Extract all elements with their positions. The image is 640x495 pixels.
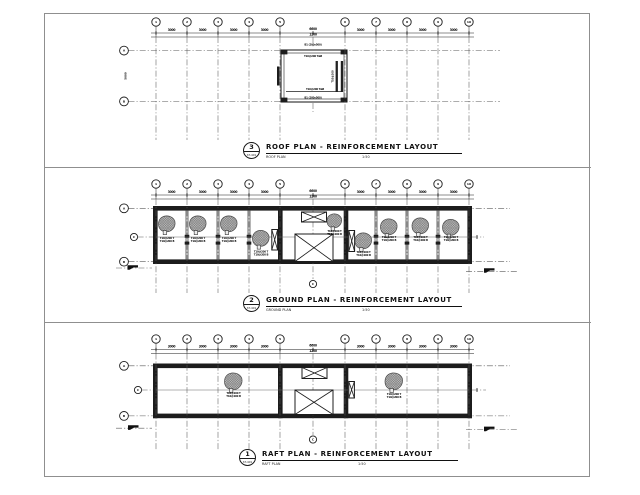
hatch-blob (327, 214, 342, 228)
level-marker (484, 268, 495, 273)
svg-text:3000: 3000 (419, 28, 427, 32)
svg-text:T10@200: T10@200 (332, 70, 335, 83)
ground-plan-title: GROUND PLAN - REINFORCEMENT LAYOUT (266, 296, 462, 307)
svg-text:3000: 3000 (419, 345, 427, 349)
svg-text:T10@200 T&B: T10@200 T&B (304, 54, 322, 58)
ground-title-block: 2 ST-401 GROUND PLAN - REINFORCEMENT LAY… (243, 295, 462, 314)
raft-plan-subtitle: RAFT PLAN (262, 462, 280, 466)
svg-text:10: 10 (467, 337, 471, 341)
svg-text:T10@200 B: T10@200 B (160, 239, 175, 243)
svg-text:3000: 3000 (230, 190, 238, 194)
svg-text:T10@200 B: T10@200 B (413, 238, 428, 242)
svg-text:2: 2 (186, 20, 188, 24)
hatch-blob (385, 373, 403, 390)
svg-text:3000: 3000 (230, 28, 238, 32)
ground-plan-scale: 1:50 (362, 308, 370, 312)
plans-canvas: AB5000T10@200B1 (200x500)T10@200 T&BT10@… (0, 0, 640, 495)
hatch-blob (225, 373, 243, 390)
roof-plan-title: ROOF PLAN - REINFORCEMENT LAYOUT (266, 143, 462, 154)
svg-text:8: 8 (406, 182, 408, 186)
svg-text:6600: 6600 (309, 189, 317, 193)
svg-text:T10@200 B: T10@200 B (222, 239, 237, 243)
svg-text:3000: 3000 (388, 28, 396, 32)
svg-text:3000: 3000 (357, 28, 365, 32)
svg-text:B1 (200x500): B1 (200x500) (304, 96, 321, 100)
svg-text:5: 5 (279, 20, 281, 24)
callout-number: 3 (244, 143, 259, 152)
hatch-blob (190, 216, 207, 232)
svg-text:7: 7 (375, 337, 377, 341)
svg-text:1: 1 (155, 20, 157, 24)
raft-plan-title: RAFT PLAN - REINFORCEMENT LAYOUT (262, 450, 458, 461)
svg-text:3: 3 (217, 20, 219, 24)
svg-text:T10@200 T&B: T10@200 T&B (306, 87, 324, 91)
roof-title-block: 3 ST-401 ROOF PLAN - REINFORCEMENT LAYOU… (243, 142, 462, 161)
callout-sheet: ST-401 (240, 459, 255, 464)
svg-text:6: 6 (344, 182, 346, 186)
svg-text:T10@200 B: T10@200 B (444, 238, 459, 242)
svg-text:3000: 3000 (261, 190, 269, 194)
svg-text:9: 9 (437, 182, 439, 186)
svg-text:T10@200 B: T10@200 B (382, 238, 397, 242)
svg-text:3000: 3000 (357, 345, 365, 349)
svg-text:10: 10 (467, 20, 471, 24)
svg-text:6600: 6600 (309, 344, 317, 348)
ground-detail-callout: 2 ST-401 (243, 295, 260, 312)
svg-text:T10@200 B: T10@200 B (327, 232, 342, 236)
callout-sheet: ST-401 (244, 305, 259, 310)
raft-plan-panel: AB12345678910300030003000300030003000300… (116, 335, 518, 450)
callout-number: 1 (240, 450, 255, 459)
svg-text:9: 9 (437, 337, 439, 341)
svg-text:3000: 3000 (261, 28, 269, 32)
svg-text:3000: 3000 (168, 28, 176, 32)
roof-detail-callout: 3 ST-401 (243, 142, 260, 159)
raft-detail-callout: 1 ST-401 (239, 449, 256, 466)
hatch-blob (355, 233, 372, 249)
callout-sheet: ST-401 (244, 152, 259, 157)
svg-text:3: 3 (217, 337, 219, 341)
roof-plan-panel: AB5000T10@200B1 (200x500)T10@200 T&BT10@… (120, 18, 500, 140)
svg-text:7: 7 (375, 20, 377, 24)
raft-plan-scale: 1:50 (358, 462, 366, 466)
svg-text:6: 6 (344, 337, 346, 341)
svg-text:2: 2 (186, 182, 188, 186)
level-marker (128, 265, 139, 270)
svg-text:3000: 3000 (388, 190, 396, 194)
raft-title-block: 1 ST-401 RAFT PLAN - REINFORCEMENT LAYOU… (239, 449, 458, 468)
svg-text:4: 4 (248, 20, 250, 24)
svg-text:8: 8 (406, 337, 408, 341)
hatch-blob (412, 218, 429, 234)
svg-text:5000: 5000 (124, 72, 128, 80)
svg-text:4: 4 (248, 337, 250, 341)
level-marker (484, 427, 495, 432)
svg-text:3000: 3000 (168, 190, 176, 194)
svg-text:T10@200 B: T10@200 B (191, 239, 206, 243)
svg-text:3000: 3000 (168, 345, 176, 349)
svg-text:3000: 3000 (419, 190, 427, 194)
svg-text:1: 1 (155, 182, 157, 186)
hatch-blob (159, 216, 176, 232)
svg-text:5: 5 (279, 337, 281, 341)
callout-number: 2 (244, 296, 259, 305)
svg-text:1: 1 (155, 337, 157, 341)
svg-text:8: 8 (406, 20, 408, 24)
hatch-blob (253, 230, 270, 246)
hatch-blob (381, 219, 398, 235)
svg-text:7: 7 (375, 182, 377, 186)
svg-text:T10@200 B: T10@200 B (254, 253, 269, 257)
ground-plan-panel: AB12345678910300030003000300030003000300… (116, 180, 518, 293)
svg-text:6600: 6600 (309, 27, 317, 31)
svg-text:3000: 3000 (450, 190, 458, 194)
svg-text:3000: 3000 (261, 345, 269, 349)
ground-plan-subtitle: GROUND PLAN (266, 308, 291, 312)
hatch-blob (221, 216, 238, 232)
drawing-sheet: { "colors": { "line": "#1c1c1c", "grid_l… (0, 0, 640, 495)
svg-text:2: 2 (186, 337, 188, 341)
svg-text:10: 10 (467, 182, 471, 186)
svg-text:3: 3 (217, 182, 219, 186)
svg-text:5: 5 (279, 182, 281, 186)
svg-text:3000: 3000 (388, 345, 396, 349)
svg-text:T10@200 B: T10@200 B (387, 395, 402, 399)
svg-text:3000: 3000 (357, 190, 365, 194)
svg-text:3000: 3000 (450, 345, 458, 349)
svg-text:3000: 3000 (230, 345, 238, 349)
svg-text:4: 4 (248, 182, 250, 186)
hatch-blob (443, 219, 460, 235)
svg-text:T10@200 B: T10@200 B (226, 394, 241, 398)
roof-plan-subtitle: ROOF PLAN (266, 155, 286, 159)
svg-text:3000: 3000 (199, 345, 207, 349)
svg-text:3000: 3000 (199, 28, 207, 32)
svg-text:3000: 3000 (450, 28, 458, 32)
roof-plan-scale: 1:50 (362, 155, 370, 159)
level-marker (128, 425, 139, 430)
svg-text:6: 6 (344, 20, 346, 24)
svg-text:3000: 3000 (199, 190, 207, 194)
svg-text:9: 9 (437, 20, 439, 24)
svg-text:T10@200 B: T10@200 B (356, 253, 371, 257)
